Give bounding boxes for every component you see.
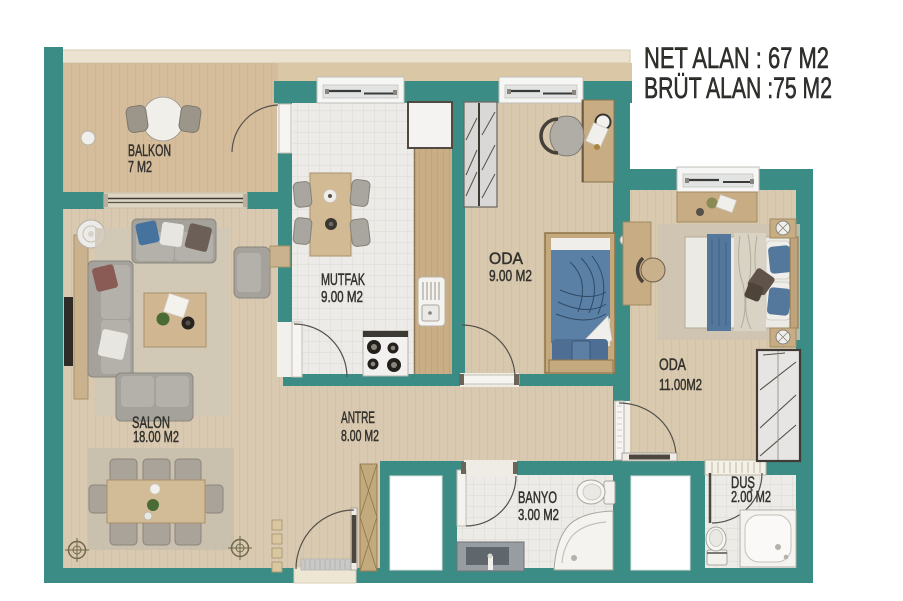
svg-text:2.00 M2: 2.00 M2 — [731, 489, 771, 506]
svg-text:8.00 M2: 8.00 M2 — [341, 428, 379, 445]
svg-text:BANYO: BANYO — [518, 489, 557, 507]
svg-text:BRÜT ALAN :75 M2: BRÜT ALAN :75 M2 — [644, 72, 832, 105]
svg-text:ANTRE: ANTRE — [341, 409, 375, 427]
svg-text:MUTFAK: MUTFAK — [321, 271, 365, 289]
svg-text:11.00M2: 11.00M2 — [659, 377, 702, 394]
svg-text:ODA: ODA — [659, 356, 686, 374]
svg-text:18.00 M2: 18.00 M2 — [133, 429, 179, 446]
svg-text:BALKON: BALKON — [128, 142, 171, 160]
svg-text:NET ALAN : 67 M2: NET ALAN : 67 M2 — [644, 42, 829, 75]
svg-text:3.00 M2: 3.00 M2 — [518, 507, 559, 524]
svg-text:ODA: ODA — [489, 250, 523, 268]
svg-text:9.00 M2: 9.00 M2 — [321, 289, 363, 306]
svg-text:9.00 M2: 9.00 M2 — [489, 268, 532, 285]
svg-text:7 M2: 7 M2 — [128, 159, 152, 176]
